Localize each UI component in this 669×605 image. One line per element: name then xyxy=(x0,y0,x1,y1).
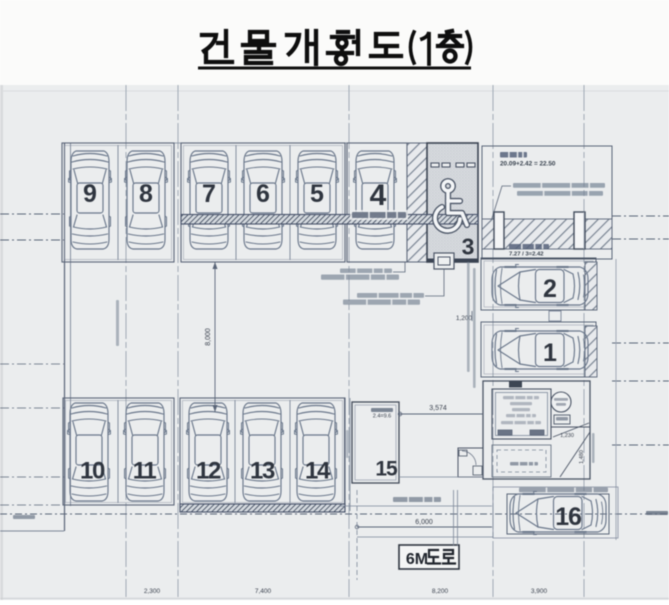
svg-text:6M: 6M xyxy=(406,551,428,568)
svg-text:2: 2 xyxy=(543,275,557,303)
svg-text:3: 3 xyxy=(462,234,475,260)
svg-text:14: 14 xyxy=(305,458,331,485)
svg-text:6,000: 6,000 xyxy=(415,519,433,526)
svg-text:13: 13 xyxy=(250,458,275,485)
svg-text:2,300: 2,300 xyxy=(144,588,161,595)
svg-text:20.09+2.42 = 22.50: 20.09+2.42 = 22.50 xyxy=(500,161,556,168)
svg-text:8: 8 xyxy=(139,180,153,208)
svg-text:7.27 / 3=2.42: 7.27 / 3=2.42 xyxy=(509,252,544,258)
svg-text:4: 4 xyxy=(370,179,387,212)
svg-text:6: 6 xyxy=(256,180,270,208)
svg-text:16: 16 xyxy=(555,503,581,531)
svg-text:9: 9 xyxy=(83,180,97,208)
svg-text:1,480: 1,480 xyxy=(579,450,585,464)
svg-text:2.4=9.6: 2.4=9.6 xyxy=(373,414,392,420)
svg-text:1,230: 1,230 xyxy=(560,433,574,439)
svg-text:11: 11 xyxy=(133,458,157,485)
svg-text:1: 1 xyxy=(543,339,557,367)
svg-text:8,000: 8,000 xyxy=(205,328,212,346)
svg-text:15: 15 xyxy=(375,458,398,481)
svg-text:3,900: 3,900 xyxy=(531,588,548,595)
svg-text:7,400: 7,400 xyxy=(255,588,272,595)
svg-text:12: 12 xyxy=(196,458,221,485)
svg-text:10: 10 xyxy=(80,458,105,485)
svg-text:3,574: 3,574 xyxy=(429,405,447,412)
svg-text:8,200: 8,200 xyxy=(432,588,449,595)
svg-text:5: 5 xyxy=(310,180,324,208)
svg-text:7: 7 xyxy=(202,180,216,208)
svg-text:1,200: 1,200 xyxy=(456,315,473,322)
